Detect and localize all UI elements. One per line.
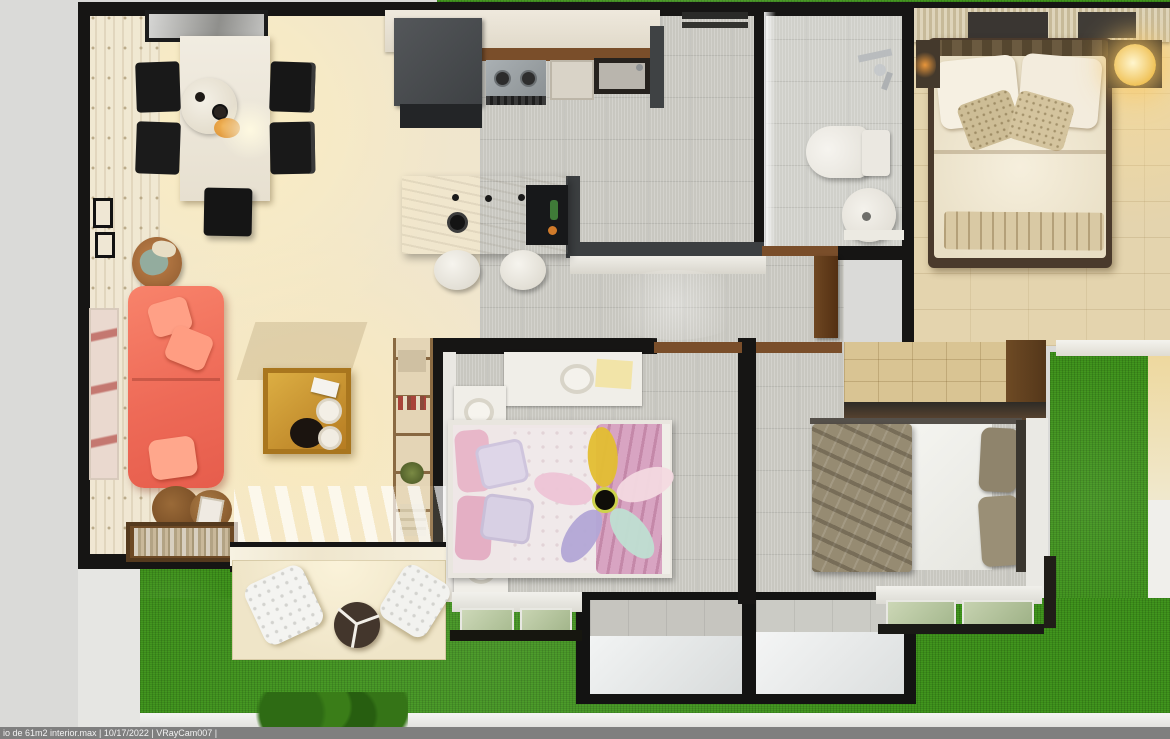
rear-alcove-left-floor (590, 636, 742, 694)
island-knob-2 (485, 195, 492, 202)
laundry-shelf-bar-1 (682, 12, 748, 19)
sofa-seam (132, 378, 220, 381)
bookshelf-books (398, 396, 426, 410)
wall-frame-1 (93, 198, 113, 228)
kids-door-lintel (654, 342, 742, 353)
fan-hub (592, 487, 618, 513)
closet-wardrobe-panel (1006, 340, 1046, 404)
sink-faucet (636, 64, 643, 71)
bathroom-door-open (814, 256, 838, 338)
wall-laundry-bath (754, 8, 766, 254)
laundry-shelf-bar-2 (682, 22, 748, 28)
bathroom-sill (844, 230, 904, 240)
bed2-right-frame-edge (1044, 556, 1056, 628)
master-nightstand-left (916, 40, 940, 88)
bathroom-door-lintel (762, 246, 838, 256)
master-rear-sill (1056, 340, 1170, 356)
wall-bath-master (902, 2, 914, 346)
bed2-window-glass-1 (886, 600, 956, 626)
closet-wood-floor (844, 342, 1010, 404)
bed2-window-glass-2 (962, 600, 1034, 626)
toilet-body (806, 126, 868, 178)
wall-kids-bed2-divider (738, 338, 756, 604)
dining-chair-3 (269, 61, 316, 113)
kids-pillow-lilac-2 (479, 493, 535, 546)
tray-cup (195, 92, 205, 102)
island-knob-1 (452, 194, 459, 201)
master-bedside-lamp (1114, 44, 1156, 86)
coffee-table-plate-1 (316, 398, 342, 424)
bed2-khaki-blanket (812, 424, 912, 572)
island-dark-tray (526, 185, 568, 245)
vray-stamp-bar: io de 61m2 interior.max | 10/17/2022 | V… (0, 727, 1170, 739)
bookshelf-folders (400, 504, 426, 536)
tray-green-bottle (550, 200, 558, 220)
refrigerator-base (400, 104, 482, 128)
sofa-pillow-3 (147, 435, 198, 481)
dining-chair-5 (204, 188, 253, 237)
master-duvet-fold (934, 150, 1106, 154)
kids-dresser-note (595, 359, 633, 389)
refrigerator (394, 18, 482, 106)
laundry-side-panel (650, 26, 664, 108)
wall-frame-2 (95, 232, 115, 258)
wall-bath-bottom (836, 246, 906, 260)
shower-head (874, 64, 886, 76)
master-wardrobe-panel-1 (968, 12, 1048, 38)
island-stool-1 (434, 250, 480, 290)
sliding-door-rail-top (230, 542, 446, 547)
island-knob-3 (518, 194, 525, 201)
cooktop-burner-1 (494, 70, 511, 87)
island-burner-knob (447, 212, 468, 233)
wall-art (89, 308, 119, 480)
kitchen-mid-cabinet (550, 60, 594, 100)
cooktop-burner-2 (520, 70, 537, 87)
dining-chair-4 (270, 122, 316, 175)
kitchen-half-wall-ledge (570, 256, 766, 274)
master-foot-blanket (944, 211, 1104, 250)
bed2-window-frame (878, 624, 1044, 634)
kids-dresser-plate (560, 364, 594, 394)
rear-alcove-left-wallface (590, 600, 742, 636)
basin-drain (862, 212, 871, 221)
toilet-tank (862, 130, 890, 176)
dining-chair-1 (135, 61, 181, 113)
exterior-left-wall-face (78, 556, 140, 727)
rear-alcove-right-floor (756, 632, 904, 694)
bed2-headboard (1016, 420, 1026, 572)
right-garden-lit-wall (1148, 345, 1170, 505)
kids-window-frame (450, 630, 582, 641)
vray-stamp-text: io de 61m2 interior.max | 10/17/2022 | V… (3, 728, 217, 738)
dining-chair-2 (135, 121, 181, 175)
bookshelf-box (398, 350, 426, 372)
master-wardrobe-panel-2 (1078, 12, 1136, 38)
bookshelf-plant (400, 462, 424, 484)
island-stool-2 (500, 250, 546, 290)
tray-orange-item (548, 226, 557, 235)
cooktop-grill (486, 96, 546, 105)
book-row (134, 528, 230, 556)
coffee-table-plate-2 (318, 426, 342, 450)
kitchen-sink (594, 58, 650, 94)
render-viewport: io de 61m2 interior.max | 10/17/2022 | V… (0, 0, 1170, 739)
kids-footboard (662, 424, 670, 574)
wall-left (78, 2, 90, 568)
bedroom2-door-lintel (756, 342, 842, 353)
tray-fruit (214, 118, 240, 138)
bed2-pillow-1 (978, 427, 1019, 493)
